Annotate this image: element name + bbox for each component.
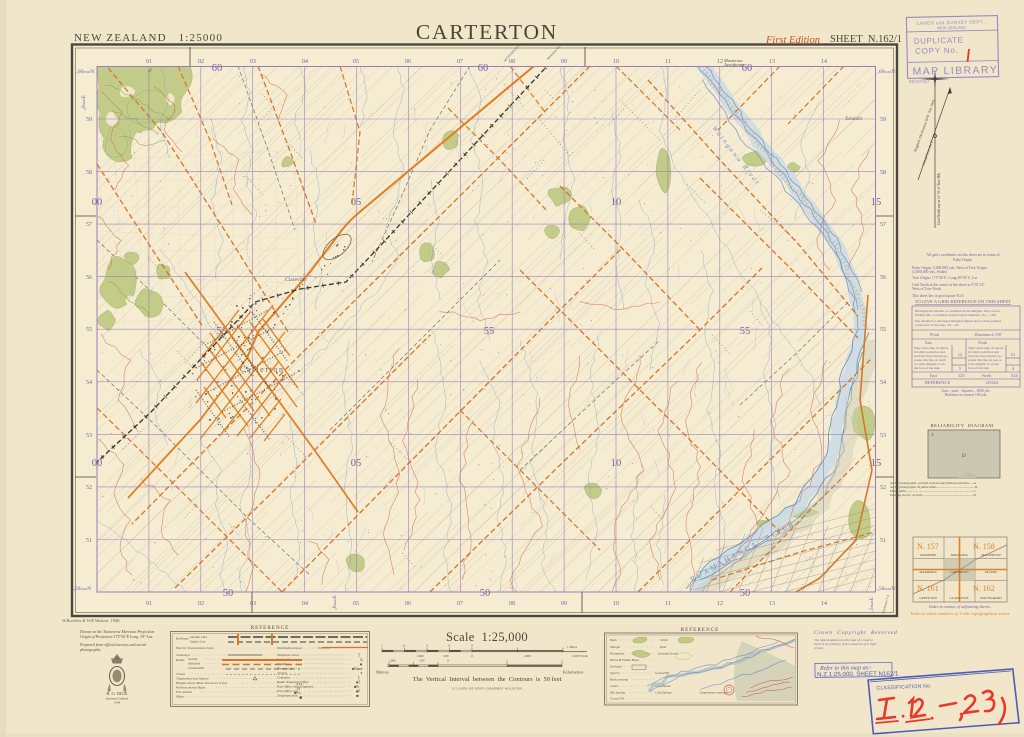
svg-text:08: 08 — [509, 59, 515, 65]
svg-text:₁60ₘₘN: ₁60ₘₘN — [877, 69, 895, 75]
svg-text:53: 53 — [880, 433, 886, 439]
svg-text:East.: East. — [925, 341, 933, 345]
svg-text:₁5ₘₘE: ₁5ₘₘE — [869, 596, 875, 612]
svg-text:Bush: Bush — [610, 638, 617, 642]
svg-text:Peat: Peat — [659, 645, 667, 649]
svg-text:Gravel Pit: Gravel Pit — [655, 671, 670, 675]
svg-text:12: 12 — [717, 59, 723, 65]
svg-text:photographs.: photographs. — [79, 647, 101, 652]
svg-text:TAUERU: TAUERU — [985, 570, 998, 574]
svg-text:REFERENCE: REFERENCE — [681, 627, 720, 633]
svg-text:Cold Spring: Cold Spring — [655, 691, 672, 695]
svg-text:60: 60 — [212, 63, 223, 74]
svg-text:Double Line: Double Line — [189, 635, 207, 639]
svg-text:52: 52 — [880, 485, 886, 491]
svg-text:Existing survey records.......: Existing survey records.................… — [889, 493, 976, 497]
svg-text:W.Borthen & W.R.Watson. 1946.: W.Borthen & W.R.Watson. 1946. — [62, 618, 121, 623]
svg-text:04: 04 — [302, 601, 308, 607]
svg-text:53: 53 — [86, 433, 92, 439]
svg-text:▣: ▣ — [299, 696, 302, 700]
svg-text:07: 07 — [457, 59, 463, 65]
svg-text:01: 01 — [146, 59, 152, 65]
svg-text:10: 10 — [613, 59, 619, 65]
svg-text:‡: ‡ — [358, 676, 360, 680]
svg-text:The Vertical Interval betwe: The Vertical Interval between the Contou… — [413, 676, 562, 683]
svg-text:REFERENCE: REFERENCE — [925, 380, 950, 385]
svg-text:☊: ☊ — [297, 687, 300, 691]
svg-text:Isolated Scrub: Isolated Scrub — [657, 652, 678, 656]
svg-text:59: 59 — [880, 117, 886, 123]
svg-text:Post Office with Telephone: Post Office with Telephone — [276, 685, 314, 689]
svg-text:50: 50 — [480, 588, 491, 599]
svg-text:Kilometres: Kilometres — [563, 670, 584, 675]
svg-text:Roads: Roads — [175, 658, 185, 662]
svg-text:Electric Transmission Lines: Electric Transmission Lines — [175, 646, 215, 650]
svg-text:North.: North. — [978, 341, 988, 345]
svg-text:RELIABILITY DIAGRAM: RELIABILITY DIAGRAM — [931, 423, 994, 428]
svg-text:11: 11 — [665, 601, 671, 607]
svg-text:Taratahi: Taratahi — [845, 117, 863, 122]
svg-text:1946: 1946 — [114, 701, 121, 705]
svg-text:55: 55 — [86, 327, 92, 333]
svg-text:False Origin.: False Origin. — [953, 258, 973, 262]
svg-text:Distribution Lines: Distribution Lines — [276, 646, 302, 650]
svg-text:Cemetery: Cemetery — [277, 676, 290, 680]
svg-text:51: 51 — [1011, 352, 1015, 357]
svg-text:Radio Telegraph Office: Radio Telegraph Office — [276, 680, 309, 684]
svg-text:Hot Spring: Hot Spring — [609, 691, 625, 695]
svg-text:Railways: Railways — [175, 637, 189, 641]
svg-text:Scale 1:25,000: Scale 1:25,000 — [446, 630, 528, 644]
svg-text:N. 162: N. 162 — [973, 584, 995, 593]
svg-text:125524: 125524 — [985, 380, 999, 385]
svg-text:1 Miles: 1 Miles — [567, 645, 578, 649]
svg-text:06: 06 — [405, 59, 411, 65]
svg-text:MATARAWA: MATARAWA — [918, 570, 937, 574]
svg-text:GREYTOWN: GREYTOWN — [919, 596, 938, 600]
svg-text:face of the map: face of the map — [968, 366, 989, 370]
svg-text:N. 157: N. 157 — [917, 542, 939, 551]
svg-text:50: 50 — [223, 588, 234, 599]
svg-text:56: 56 — [86, 275, 92, 281]
svg-text:524: 524 — [1011, 373, 1018, 378]
svg-text:West of True North.: West of True North. — [912, 287, 942, 291]
svg-text:Index to sheet numbers of 1 mi: Index to sheet numbers of 1 mile topogra… — [910, 611, 1010, 616]
svg-text:12: 12 — [717, 601, 723, 607]
svg-text:Index to names of adjoining sh: Index to names of adjoining sheets. — [928, 604, 991, 609]
svg-text:07: 07 — [457, 601, 463, 607]
svg-text:COPY No.: COPY No. — [915, 46, 959, 56]
svg-text:Clareville: Clareville — [285, 277, 307, 283]
svg-text:Origin of Projection 175°30´E: Origin of Projection 175°30´E Long. 39° … — [80, 634, 153, 639]
svg-text:Orchard: Orchard — [610, 665, 622, 669]
svg-text:■P: ■P — [356, 690, 360, 694]
svg-text:✝: ✝ — [360, 672, 363, 676]
svg-text:NEW ZEALAND: NEW ZEALAND — [937, 25, 966, 31]
svg-text:Wireless Aerial Masts: Wireless Aerial Masts — [176, 686, 206, 690]
svg-text:MASTERTON: MASTERTON — [980, 553, 1001, 557]
svg-text:02: 02 — [198, 601, 204, 607]
svg-text:Mines: Mines — [175, 695, 185, 699]
svg-text:Single Line: Single Line — [190, 640, 206, 644]
svg-text:.123: .123 — [296, 682, 302, 686]
svg-text:N. 158: N. 158 — [973, 542, 995, 551]
svg-text:N. Z. LANDS AND SURVEY DEPA: N. Z. LANDS AND SURVEY DEPARTMENT WELLIN… — [452, 688, 522, 691]
svg-text:■F.S.: ■F.S. — [294, 691, 301, 695]
svg-text:Quarry: Quarry — [610, 671, 620, 675]
svg-text:North: North — [982, 373, 991, 378]
svg-text:04: 04 — [302, 59, 308, 65]
svg-text:Crown Copyright Reserved: Crown Copyright Reserved — [814, 630, 898, 636]
svg-text:East: East — [930, 373, 938, 378]
svg-text:MAP LIBRARY: MAP LIBRARY — [912, 64, 998, 78]
svg-text:MAUNGARAKI: MAUNGARAKI — [979, 596, 1003, 600]
svg-text:Reference to nearest 100 yds.: Reference to nearest 100 yds. — [945, 393, 988, 397]
svg-text:06: 06 — [405, 601, 411, 607]
svg-text:₅50ₘₘN: ₅50ₘₘN — [877, 586, 895, 592]
svg-text:TO GIVE A GRID REFERENCE ON TH: TO GIVE A GRID REFERENCE ON THIS SHEET — [915, 299, 1012, 304]
svg-text:True Origin: 175°30´E. Long.3: True Origin: 175°30´E. Long.30°00´S. Lat — [912, 276, 978, 280]
svg-text:Rock outcrop: Rock outcrop — [609, 678, 628, 682]
svg-text:N. 161: N. 161 — [917, 584, 939, 593]
svg-text:59: 59 — [86, 117, 92, 123]
svg-text:58: 58 — [86, 170, 92, 176]
svg-text:Sealed: Sealed — [188, 657, 197, 661]
svg-text:DUPLICATE: DUPLICATE — [914, 36, 964, 46]
svg-text:■: ■ — [360, 663, 362, 667]
svg-text:R. G. DICK: R. G. DICK — [106, 691, 128, 696]
svg-text:51: 51 — [86, 538, 92, 544]
svg-text:Homestead: Homestead — [276, 667, 293, 671]
svg-text:A: A — [931, 432, 934, 437]
svg-text:Shingle: Shingle — [610, 645, 621, 649]
svg-text:the face of the map: the face of the map — [914, 366, 940, 370]
svg-text:Grid North say in ¼° W of True: Grid North say in ¼° W of True Nth — [937, 173, 941, 225]
svg-text:This sheet lies in grid square: This sheet lies in grid square N.31 — [912, 294, 964, 298]
svg-text:55: 55 — [880, 327, 886, 333]
svg-text:Karamea à 330´: Karamea à 330´ — [974, 332, 1003, 337]
svg-text:GLADSTONE: GLADSTONE — [949, 596, 969, 600]
svg-text:500: 500 — [420, 659, 425, 663]
svg-text:09: 09 — [561, 601, 567, 607]
svg-text:09: 09 — [561, 59, 567, 65]
svg-text:₅50ₘₘN: ₅50ₘₘN — [73, 586, 91, 592]
svg-text:■Pt: ■Pt — [354, 685, 359, 689]
svg-text:01: 01 — [146, 601, 152, 607]
svg-text:14: 14 — [821, 601, 827, 607]
svg-text:60: 60 — [478, 63, 489, 74]
svg-text:50: 50 — [740, 588, 751, 599]
svg-text:Burnt & Fallen Bush: Burnt & Fallen Bush — [610, 658, 639, 662]
svg-text:05: 05 — [353, 601, 359, 607]
svg-text:55: 55 — [740, 326, 751, 337]
svg-text:₀0ₘₘE: ₀0ₘₘE — [81, 94, 87, 110]
svg-text:N.Z.1:25,000, SHEET N162/1: N.Z.1:25,000, SHEET N162/1 — [817, 670, 899, 678]
svg-text:Carterton: Carterton — [240, 365, 285, 374]
svg-text:58: 58 — [880, 170, 886, 176]
svg-text:08: 08 — [509, 601, 515, 607]
svg-text:05: 05 — [353, 59, 359, 65]
svg-text:14: 14 — [821, 59, 827, 65]
svg-text:54: 54 — [880, 380, 886, 386]
svg-text:52: 52 — [86, 485, 92, 491]
svg-text:57: 57 — [86, 222, 92, 228]
svg-text:NEW ZEALAND 1:25000: NEW ZEALAND 1:25000 — [74, 32, 223, 44]
svg-text:03: 03 — [250, 59, 256, 65]
svg-text:WAIOHINE: WAIOHINE — [920, 553, 937, 557]
svg-text:₁60ₘₘN: ₁60ₘₘN — [76, 69, 94, 75]
svg-text:51: 51 — [880, 538, 886, 544]
svg-text:Point: Point — [929, 332, 940, 337]
svg-text:Metres: Metres — [376, 670, 389, 675]
svg-text:13: 13 — [769, 601, 775, 607]
svg-text:of way.: of way. — [814, 646, 824, 650]
svg-text:125: 125 — [958, 373, 965, 378]
svg-text:54: 54 — [86, 380, 92, 386]
svg-text:Unmetalled: Unmetalled — [188, 666, 204, 670]
svg-text:Metalled: Metalled — [187, 662, 200, 666]
svg-text:All grid coordinates on this s: All grid coordinates on this sheet are i… — [926, 253, 1000, 257]
svg-text:Telephone Lines: Telephone Lines — [277, 653, 300, 657]
svg-text:500: 500 — [444, 654, 449, 658]
svg-text:Heights above Mean Sea Level i: Heights above Mean Sea Level in feet — [175, 681, 228, 685]
svg-text:Plantation: Plantation — [609, 652, 625, 656]
svg-text:REFERENCE: REFERENCE — [251, 625, 290, 631]
svg-text:Trigonometrical Station: Trigonometrical Station — [176, 677, 209, 681]
svg-text:11: 11 — [665, 59, 671, 65]
svg-text:13: 13 — [769, 59, 775, 65]
svg-text:₀0ₘₘE: ₀0ₘₘE — [332, 594, 338, 610]
svg-text:56: 56 — [880, 275, 886, 281]
svg-text:02: 02 — [198, 59, 204, 65]
svg-text:05: 05 — [351, 458, 362, 469]
svg-text:WAINGAWA: WAINGAWA — [950, 553, 968, 557]
svg-text:10: 10 — [613, 601, 619, 607]
svg-text:CARTERTON: CARTERTON — [416, 20, 558, 44]
svg-text:12: 12 — [958, 352, 962, 357]
svg-text:Fire Station: Fire Station — [175, 690, 192, 694]
svg-text:Scrub: Scrub — [660, 638, 668, 642]
svg-text:D: D — [962, 454, 966, 459]
svg-text:■Name: ■Name — [352, 667, 363, 671]
svg-text:Gravel Pit: Gravel Pit — [610, 697, 625, 701]
svg-text:Aerodrome: Aerodrome — [723, 62, 744, 67]
svg-text:Caves: Caves — [610, 684, 619, 688]
svg-text:■t: ■t — [356, 694, 359, 698]
svg-text:57: 57 — [880, 222, 886, 228]
svg-text:Tracks: Tracks — [176, 672, 186, 676]
svg-text:03: 03 — [250, 601, 256, 607]
svg-text:CARTERTON: CARTERTON — [950, 570, 970, 574]
